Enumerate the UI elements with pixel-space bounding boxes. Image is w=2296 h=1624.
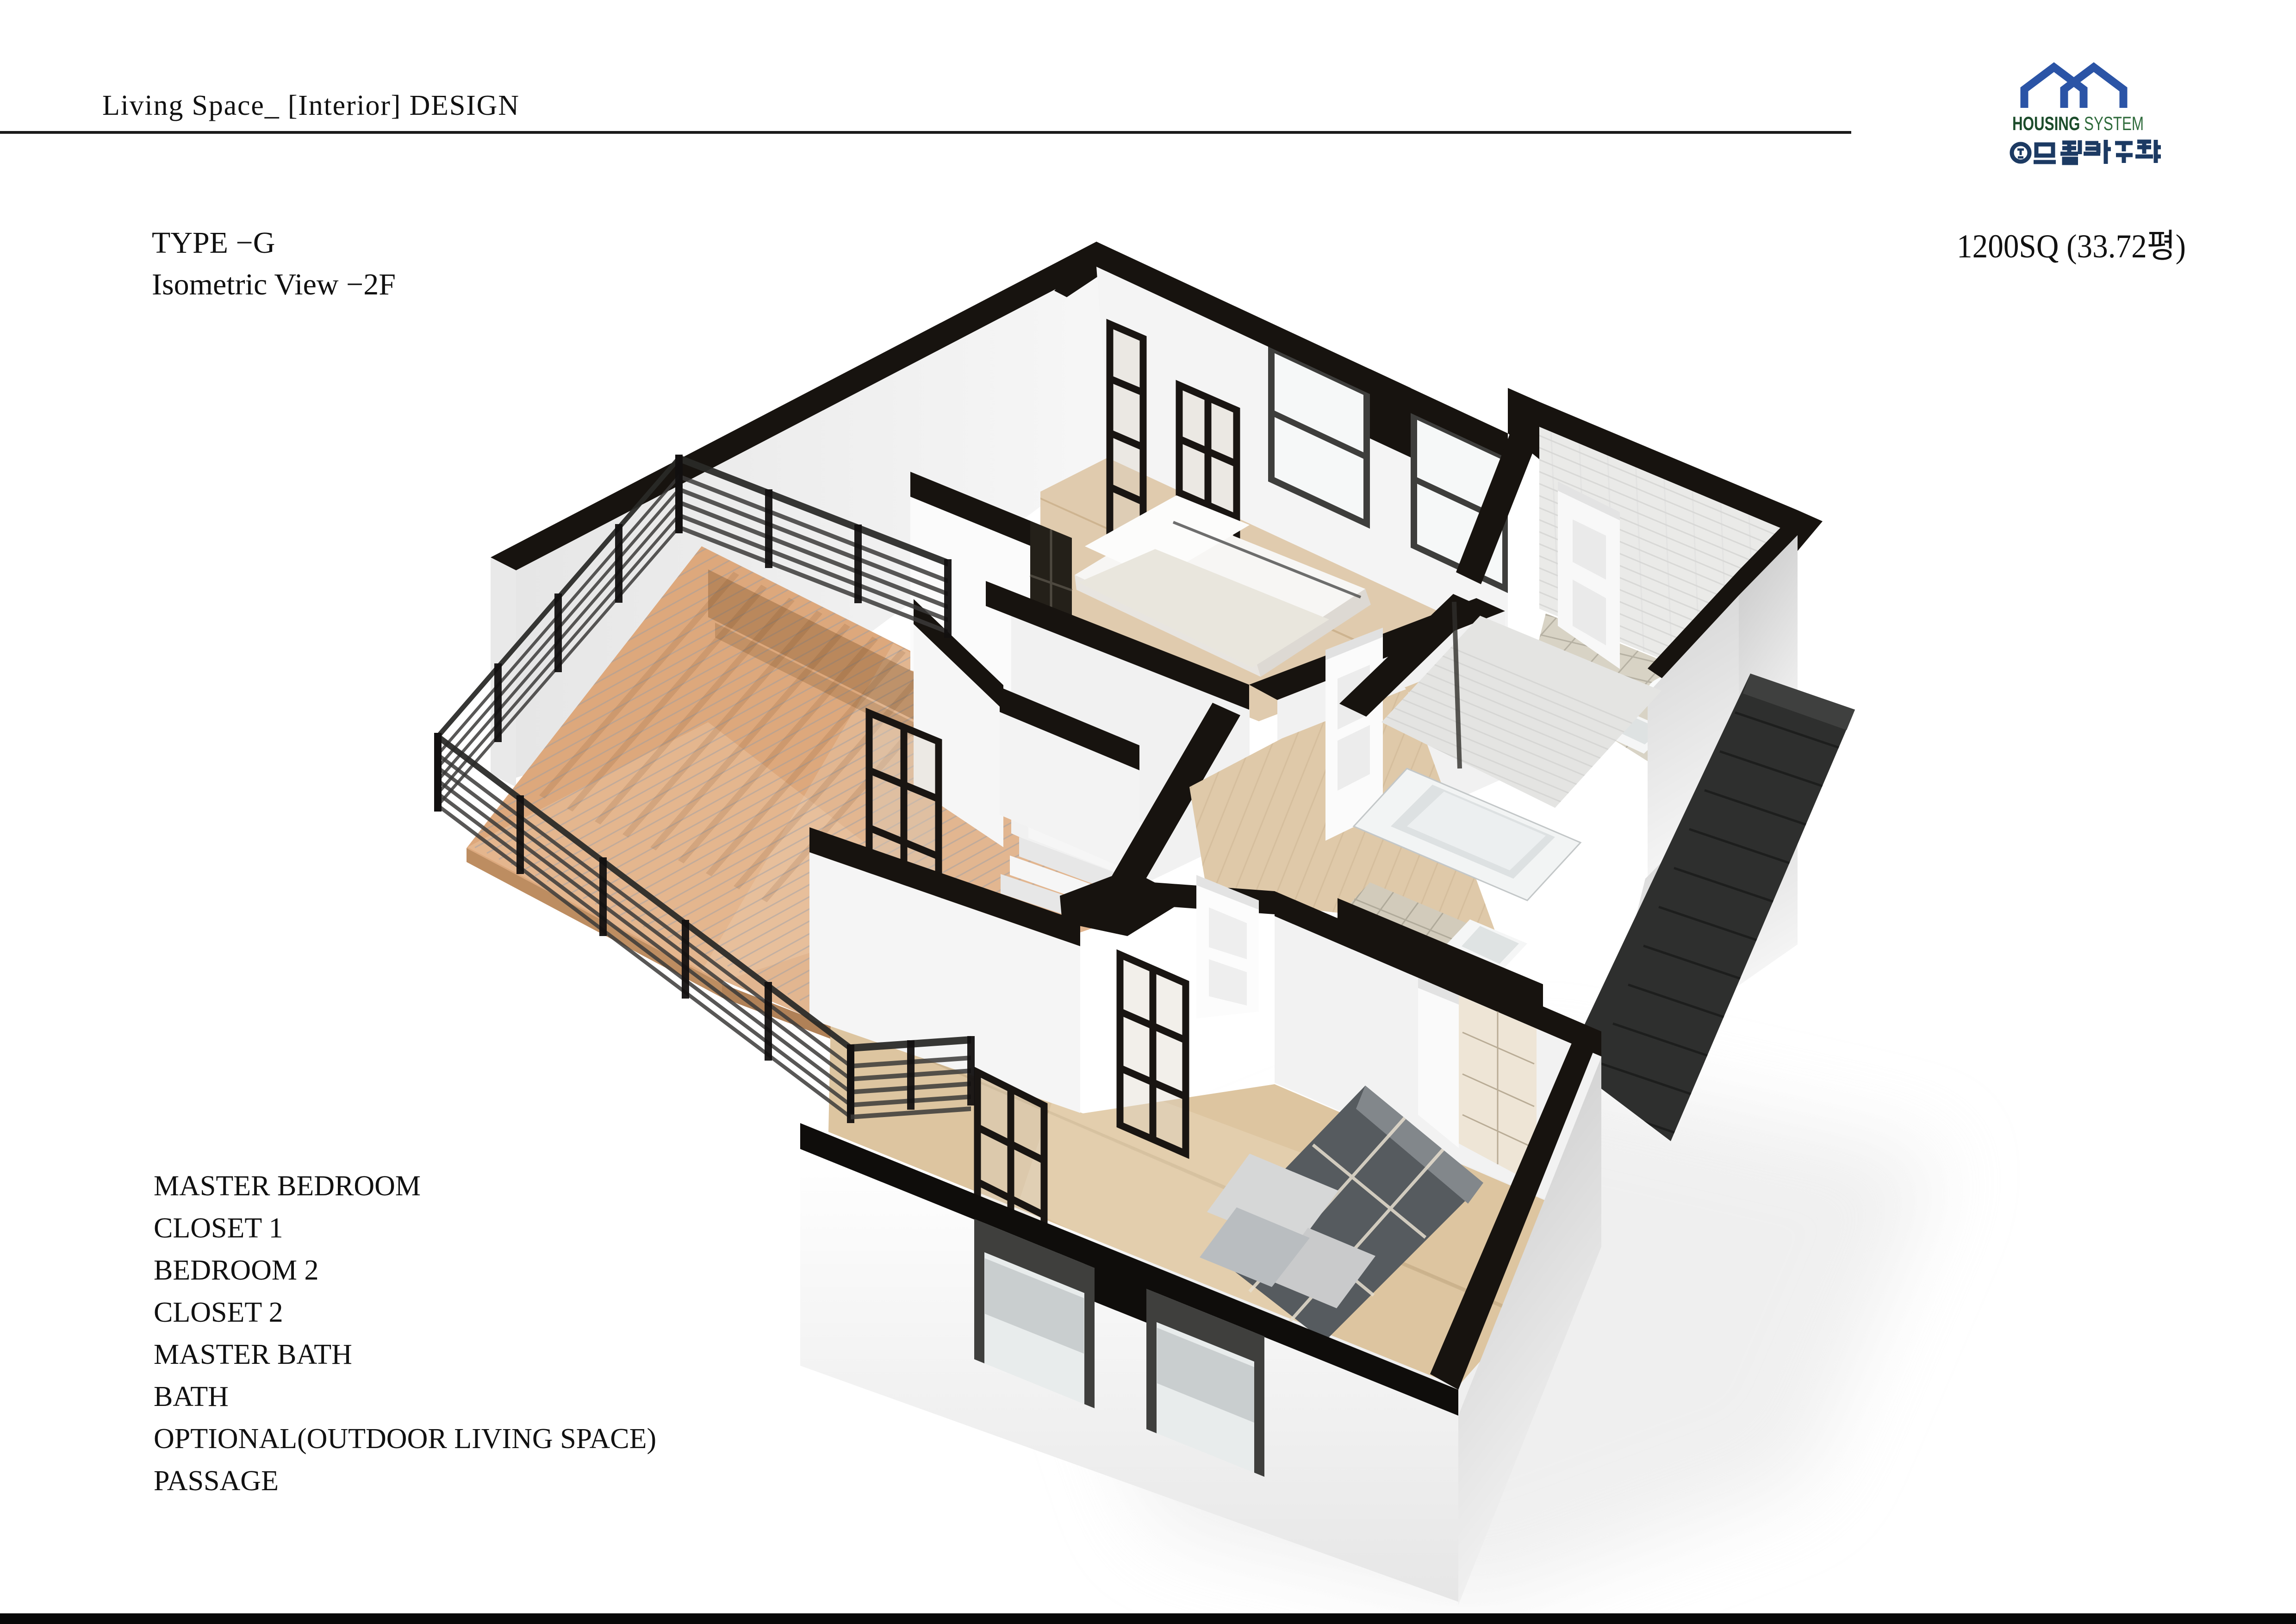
svg-text:CLOSET 2: CLOSET 2	[154, 1297, 283, 1328]
svg-text:1200SQ (33.72평): 1200SQ (33.72평)	[1957, 228, 2186, 265]
svg-text:MASTER BATH: MASTER BATH	[154, 1339, 352, 1370]
svg-text:TYPE −G: TYPE −G	[152, 226, 275, 260]
svg-text:BATH: BATH	[154, 1381, 229, 1412]
svg-text:Living Space_ [Interior] DESIG: Living Space_ [Interior] DESIGN	[102, 90, 519, 121]
svg-text:OPTIONAL(OUTDOOR LIVING SPACE): OPTIONAL(OUTDOOR LIVING SPACE)	[154, 1423, 656, 1455]
svg-text:MASTER BEDROOM: MASTER BEDROOM	[154, 1170, 421, 1202]
svg-text:HOUSING SYSTEM: HOUSING SYSTEM	[2012, 112, 2144, 134]
svg-text:BEDROOM 2: BEDROOM 2	[154, 1255, 319, 1286]
svg-text:PASSAGE: PASSAGE	[154, 1465, 279, 1497]
svg-text:CLOSET 1: CLOSET 1	[154, 1212, 283, 1244]
svg-text:Isometric View −2F: Isometric View −2F	[152, 268, 396, 301]
